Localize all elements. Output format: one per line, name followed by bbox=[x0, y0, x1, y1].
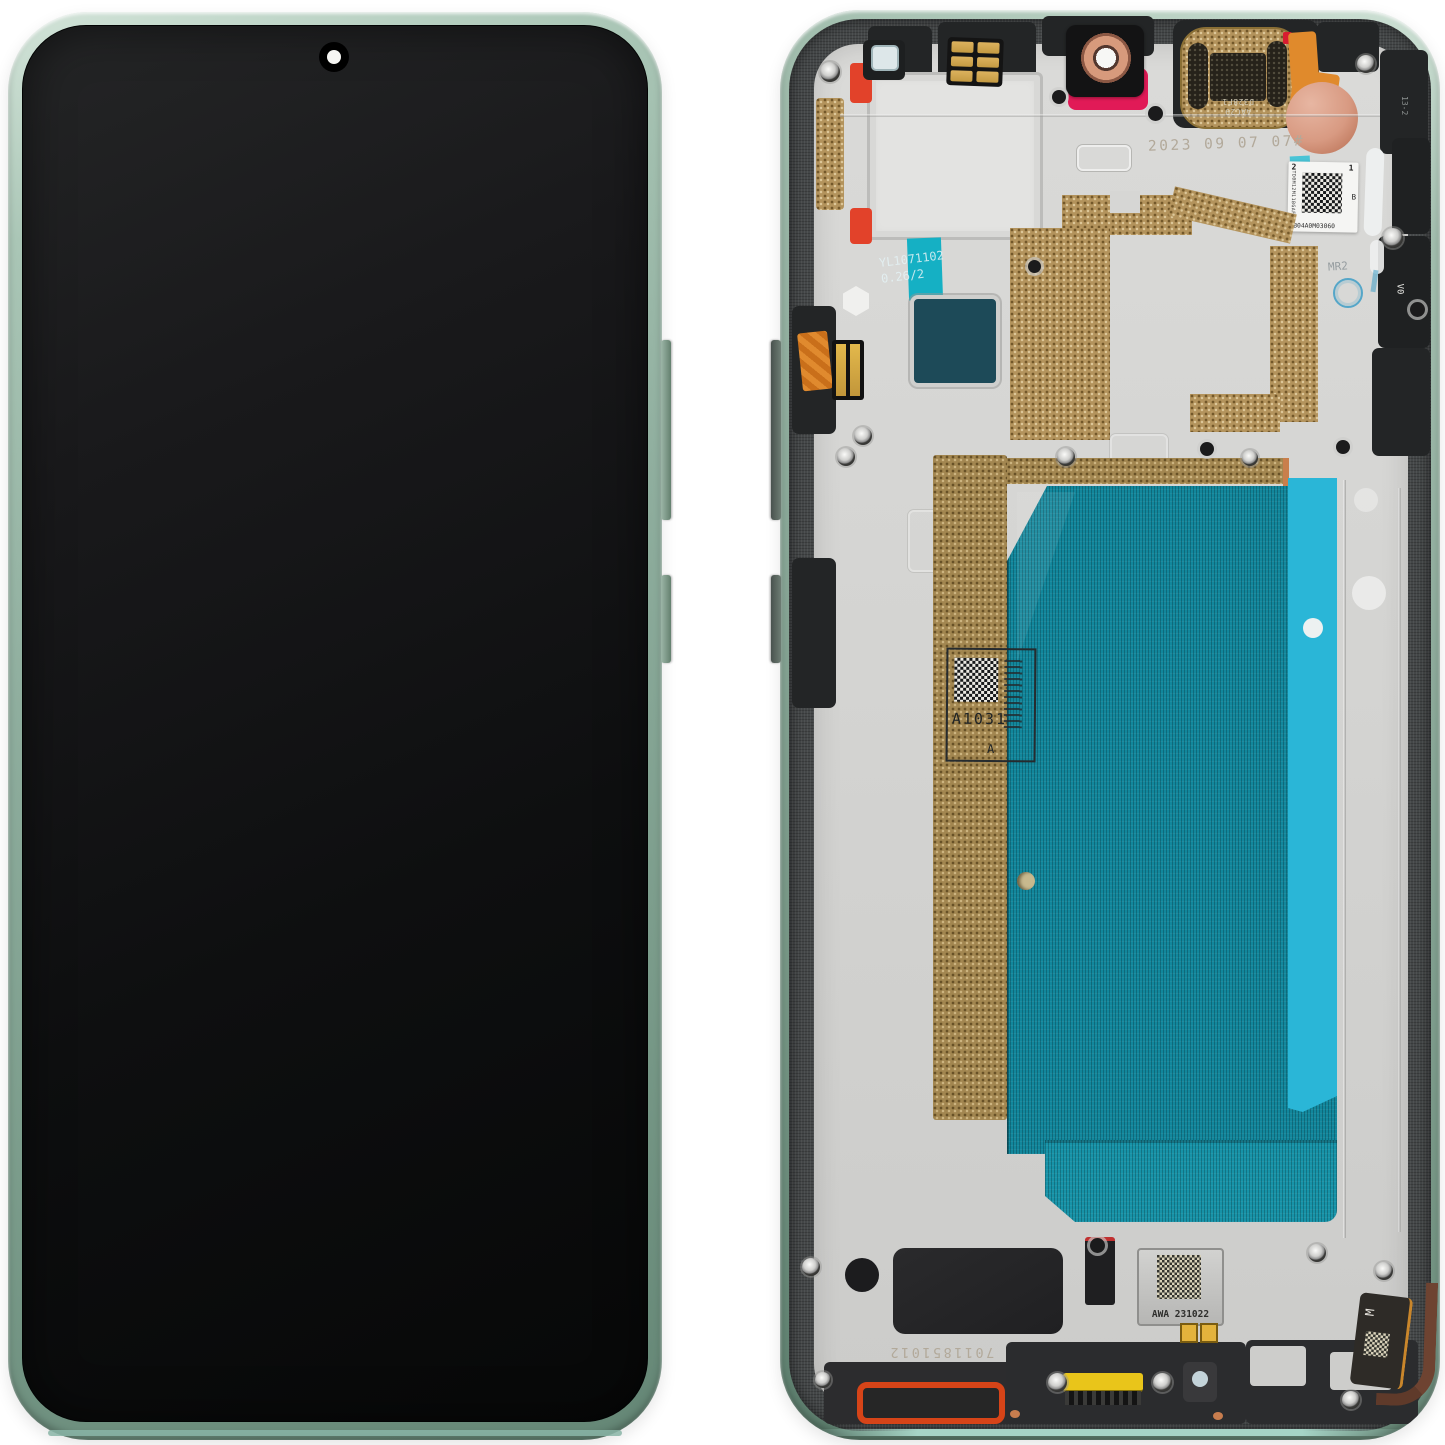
volume-button bbox=[661, 340, 671, 520]
speaker-mesh-pill bbox=[1267, 41, 1287, 107]
screw-hole bbox=[1052, 90, 1066, 104]
plate-emboss bbox=[1077, 145, 1131, 171]
faint-dot bbox=[1354, 488, 1378, 512]
copper-dot bbox=[1010, 1410, 1020, 1418]
gold-contact bbox=[850, 344, 860, 396]
adhesive-sheet-flap bbox=[1045, 1140, 1337, 1222]
gold-spring-contact bbox=[1200, 1323, 1218, 1343]
front-camera-punch-hole bbox=[319, 42, 349, 72]
black-disc bbox=[845, 1258, 879, 1292]
screw-hole bbox=[1148, 106, 1163, 121]
gold-spring-contact bbox=[1180, 1323, 1198, 1343]
gold-contact-pad bbox=[946, 37, 1004, 87]
orange-flex-cable bbox=[797, 331, 833, 392]
stamped-code: A1031 bbox=[952, 710, 1007, 728]
screw bbox=[1048, 1373, 1067, 1392]
screw bbox=[820, 62, 840, 82]
bottom-flex: M bbox=[1350, 1292, 1414, 1390]
adhesive-strip-cyan bbox=[1288, 478, 1337, 1112]
screw bbox=[802, 1258, 820, 1276]
thermal-paste-blob bbox=[1370, 240, 1384, 274]
speaker-mesh-pill bbox=[1188, 43, 1208, 109]
module-code: AWA 231022 bbox=[1139, 1309, 1222, 1320]
white-dot bbox=[1303, 618, 1323, 638]
emi-mesh-trace bbox=[1190, 394, 1280, 432]
plate-ridge bbox=[1398, 488, 1401, 1232]
screw bbox=[1242, 450, 1258, 466]
stamped-qr-label: A1031 A bbox=[946, 648, 1037, 763]
screw bbox=[1308, 1244, 1326, 1262]
red-clip bbox=[850, 208, 872, 244]
plastic-mold-code-v0: V0 bbox=[1394, 284, 1404, 295]
plate-ridge bbox=[840, 114, 1380, 117]
right-antenna-plastic bbox=[1372, 348, 1430, 456]
screw-hole bbox=[1336, 440, 1350, 454]
screw bbox=[1357, 55, 1375, 73]
copper-dot bbox=[1213, 1412, 1223, 1420]
right-antenna-plastic bbox=[1392, 138, 1430, 234]
microphone-foam bbox=[1183, 1362, 1217, 1402]
volume-button-back bbox=[771, 340, 781, 520]
screw-hole bbox=[1028, 260, 1041, 273]
graphite-film-strip bbox=[933, 455, 1007, 1120]
mold-code-mr2: MR2 bbox=[1328, 259, 1349, 273]
metal-patch bbox=[1250, 1346, 1306, 1386]
blue-ink-stamp bbox=[1333, 278, 1363, 308]
left-antenna-plastic bbox=[792, 558, 836, 708]
front-camera-lens bbox=[327, 50, 341, 64]
screw bbox=[1057, 448, 1075, 466]
screw bbox=[837, 448, 855, 466]
display-assembly-back: 13-2 V0 bbox=[780, 10, 1440, 1440]
camera-lens-ring bbox=[1080, 32, 1132, 84]
screw bbox=[854, 427, 872, 445]
red-gasket bbox=[857, 1382, 1005, 1424]
screw bbox=[815, 1372, 831, 1388]
gold-contact bbox=[836, 344, 846, 396]
label-grade: B bbox=[1351, 192, 1356, 201]
board-connector bbox=[1063, 1373, 1143, 1392]
label-serial: 3B04A0M03060 bbox=[1289, 222, 1355, 230]
speaker-module-shield: AWA 231022 bbox=[1137, 1248, 1224, 1326]
thermal-paste-blob bbox=[1363, 148, 1384, 237]
plate-ridge bbox=[1343, 480, 1346, 1238]
rim-mold-code: 13-2 bbox=[1400, 96, 1409, 115]
label-corner-number: 1 bbox=[1349, 163, 1354, 172]
flex-qr-code bbox=[1363, 1331, 1390, 1358]
screw-hole bbox=[1200, 442, 1214, 456]
faint-dot bbox=[1352, 576, 1386, 610]
power-button bbox=[661, 575, 671, 663]
graphite-pad bbox=[893, 1248, 1063, 1334]
shield-plate bbox=[867, 72, 1043, 240]
back-frame: 13-2 V0 bbox=[780, 10, 1440, 1440]
product-photo: 13-2 V0 bbox=[0, 0, 1445, 1445]
frame-bottom-highlight bbox=[810, 1429, 1410, 1436]
screw bbox=[1342, 1391, 1360, 1409]
adhesive-sheet-teal bbox=[1007, 486, 1337, 1154]
stamped-qr-code bbox=[954, 658, 998, 702]
screw bbox=[1375, 1262, 1393, 1280]
sensor-window bbox=[871, 45, 899, 71]
bottom-stamp: 7011851012 bbox=[888, 1344, 994, 1360]
screw-hole bbox=[1410, 302, 1425, 317]
serial-label: 2 1 B TD0M12M11BGAF 3B04A0M03060 bbox=[1287, 161, 1358, 232]
microphone-hole bbox=[1192, 1371, 1208, 1387]
right-antenna-plastic: V0 bbox=[1378, 236, 1430, 348]
plate-notch bbox=[1110, 191, 1140, 213]
tan-dot bbox=[1017, 872, 1035, 890]
display-assembly-front bbox=[8, 12, 662, 1440]
frame-bottom-highlight bbox=[48, 1430, 622, 1436]
power-button-back bbox=[771, 575, 781, 663]
speaker-etched-code: AAC29 D328F1 bbox=[1206, 90, 1270, 116]
adhesive-pad-dark-teal bbox=[910, 295, 1000, 387]
label-qr-code bbox=[1302, 173, 1343, 214]
connector-pins bbox=[1065, 1391, 1141, 1405]
stamped-rev: A bbox=[948, 742, 1034, 757]
flex-mold-code: M bbox=[1363, 1308, 1378, 1317]
screw bbox=[1153, 1373, 1172, 1392]
emi-mesh-trace bbox=[1010, 228, 1110, 440]
screw-hole bbox=[1090, 1238, 1105, 1253]
screw bbox=[1383, 228, 1403, 248]
module-qr-code bbox=[1157, 1255, 1201, 1299]
front-screen bbox=[22, 25, 648, 1422]
